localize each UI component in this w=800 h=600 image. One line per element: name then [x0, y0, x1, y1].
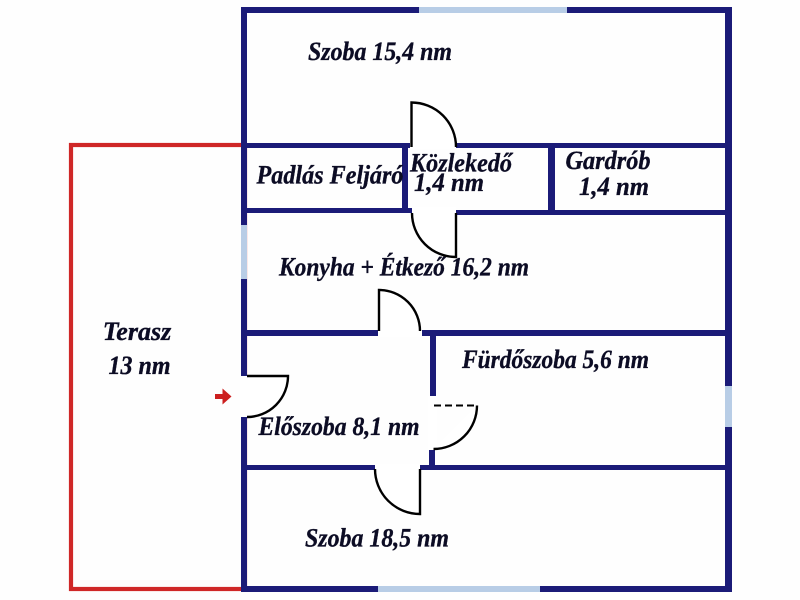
svg-text:1,4 nm: 1,4 nm	[579, 172, 649, 201]
svg-text:13 nm: 13 nm	[109, 351, 171, 380]
svg-text:Szoba 15,4 nm: Szoba 15,4 nm	[308, 37, 452, 66]
svg-text:Szoba 18,5 nm: Szoba 18,5 nm	[305, 524, 449, 553]
svg-text:Padlás Feljáró: Padlás Feljáró	[256, 161, 404, 190]
svg-text:Fürdőszoba 5,6 nm: Fürdőszoba 5,6 nm	[461, 345, 649, 374]
svg-text:Előszoba 8,1 nm: Előszoba 8,1 nm	[258, 412, 420, 441]
svg-text:Terasz: Terasz	[103, 317, 172, 346]
svg-text:1,4 nm: 1,4 nm	[414, 168, 484, 197]
svg-text:Konyha + Étkező 16,2 nm: Konyha + Étkező 16,2 nm	[278, 253, 529, 282]
svg-text:Gardrób: Gardrób	[566, 146, 651, 175]
